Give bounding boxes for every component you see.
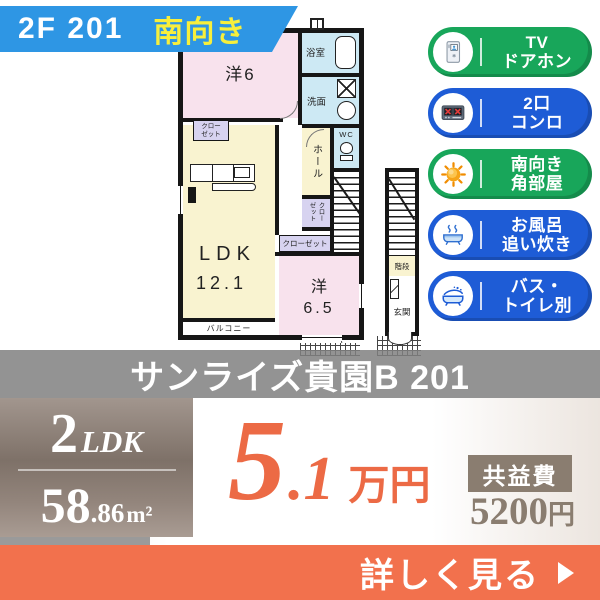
spec-divider: [18, 469, 176, 471]
room-wc: WC: [334, 128, 359, 168]
entrance-step: [390, 279, 399, 299]
wall: [330, 128, 334, 252]
badge-line1: 南向き: [511, 155, 564, 174]
fee-value: 5200円: [455, 492, 590, 531]
facing-direction: 南向き: [153, 7, 246, 51]
sun-icon: [433, 154, 473, 194]
doorphone-icon: [433, 32, 473, 72]
badge-line1: バス・: [511, 277, 564, 296]
entrance-label: 玄関: [393, 306, 410, 318]
cta-arrow-icon[interactable]: [558, 562, 574, 584]
stairs-label: 階段: [395, 261, 410, 272]
balcony: バルコニー: [183, 322, 275, 335]
details-button[interactable]: 詳しく見る: [0, 545, 600, 600]
room-western65-label: 洋: [311, 273, 327, 297]
closet-upper-line1: クロー: [201, 123, 221, 131]
sink: [337, 101, 356, 120]
fee-label: 共益費: [483, 457, 558, 491]
unit-number: 2F 201: [18, 12, 123, 46]
stove-icon: [433, 93, 473, 133]
area-decimal: .86: [91, 500, 125, 527]
toilet: [340, 142, 353, 154]
kitchen-wall-stub: [188, 187, 196, 203]
closet-lower: クローゼット: [279, 235, 331, 252]
rent-price: 5 .1 万円: [228, 403, 431, 535]
room-wc-label: WC: [334, 130, 359, 139]
feature-badge-tv-doorphone: TV ドアホン: [428, 27, 592, 77]
price-decimal: .1: [288, 448, 335, 510]
fee-amount: 5200: [470, 490, 548, 533]
bath-reheat-icon: [433, 215, 473, 255]
balcony-label: バルコニー: [207, 323, 252, 334]
area-main: 58: [41, 480, 91, 530]
stairs-landing: 階段: [389, 256, 415, 276]
feature-badge-bath-reheat: お風呂 追い炊き: [428, 210, 592, 260]
window: [302, 335, 342, 340]
badge-line1: 2口: [523, 94, 550, 113]
toilet-tank: [340, 155, 353, 161]
area-unit: m²: [126, 503, 152, 526]
entrance-door-arc: [388, 332, 412, 345]
details-button-label[interactable]: 詳しく見る: [360, 548, 540, 597]
badge-line2: ドアホン: [502, 52, 572, 71]
closet-upper-line2: ゼット: [201, 131, 221, 139]
room-ldk-size: 12.1: [196, 273, 247, 294]
price-main: 5: [228, 403, 286, 519]
layout-area-box: 2 LDK 58 .86 m²: [0, 398, 193, 537]
room-western65: 洋 6.5: [279, 256, 359, 335]
badge-line1: TV: [526, 33, 549, 52]
property-name-band: サンライズ貴園B 201: [0, 350, 600, 398]
layout-count: 2: [50, 406, 78, 462]
washing-machine-pan: [337, 79, 356, 98]
listing-card: 洋6 浴室 洗面 WC ホール クローゼット クローゼット LDK 12.1: [0, 0, 600, 600]
room-bath-label: 浴室: [306, 45, 325, 59]
window: [359, 284, 364, 308]
price-unit: 万円: [349, 465, 431, 506]
wall: [183, 318, 275, 322]
window: [178, 186, 183, 214]
wall: [298, 33, 302, 125]
badge-line2: コンロ: [511, 113, 564, 132]
wall: [275, 125, 279, 235]
badge-line2: トイレ別: [502, 296, 572, 315]
room-western6-label: 洋6: [225, 60, 255, 85]
badge-line1: お風呂: [511, 216, 564, 235]
room-ldk-label: LDK: [199, 243, 256, 266]
wall: [302, 227, 330, 231]
closet-small: クローゼット: [302, 199, 330, 227]
closet-upper: クロー ゼット: [193, 120, 229, 141]
wall: [302, 73, 359, 77]
badge-line2: 追い炊き: [502, 235, 572, 254]
feature-badge-bath-toilet-separate: バス・ トイレ別: [428, 271, 592, 321]
feature-badge-south-corner: 南向き 角部屋: [428, 149, 592, 199]
wall: [334, 168, 359, 172]
room-western65-size: 6.5: [303, 300, 334, 318]
wall: [275, 252, 359, 256]
layout-type: LDK: [81, 426, 143, 457]
vent: [310, 18, 324, 30]
badge-line2: 角部屋: [511, 174, 564, 193]
room-hall-label: ホール: [309, 144, 324, 180]
fee-unit: 円: [548, 500, 575, 530]
closet-small-label: クローゼット: [307, 202, 325, 224]
room-ldk: LDK 12.1: [183, 125, 275, 318]
property-name: サンライズ貴園B 201: [130, 350, 470, 399]
bathtub: [335, 36, 356, 69]
floor-direction-banner: 2F 201 南向き: [0, 6, 298, 52]
feature-badge-stove: 2口 コンロ: [428, 88, 592, 138]
fee-label-box: 共益費: [468, 455, 572, 492]
kitchen-ledge: [212, 183, 256, 191]
room-bath: 浴室: [302, 33, 359, 73]
spec-box-shadow: [0, 537, 150, 545]
kitchen-sink: [234, 167, 250, 178]
entrance-area: 玄関: [389, 276, 415, 328]
closet-lower-label: クローゼット: [283, 238, 328, 249]
room-washroom-label: 洗面: [307, 94, 326, 108]
wall: [302, 195, 330, 199]
room-washroom: 洗面: [302, 77, 359, 124]
bath-splash-icon: [433, 276, 473, 316]
